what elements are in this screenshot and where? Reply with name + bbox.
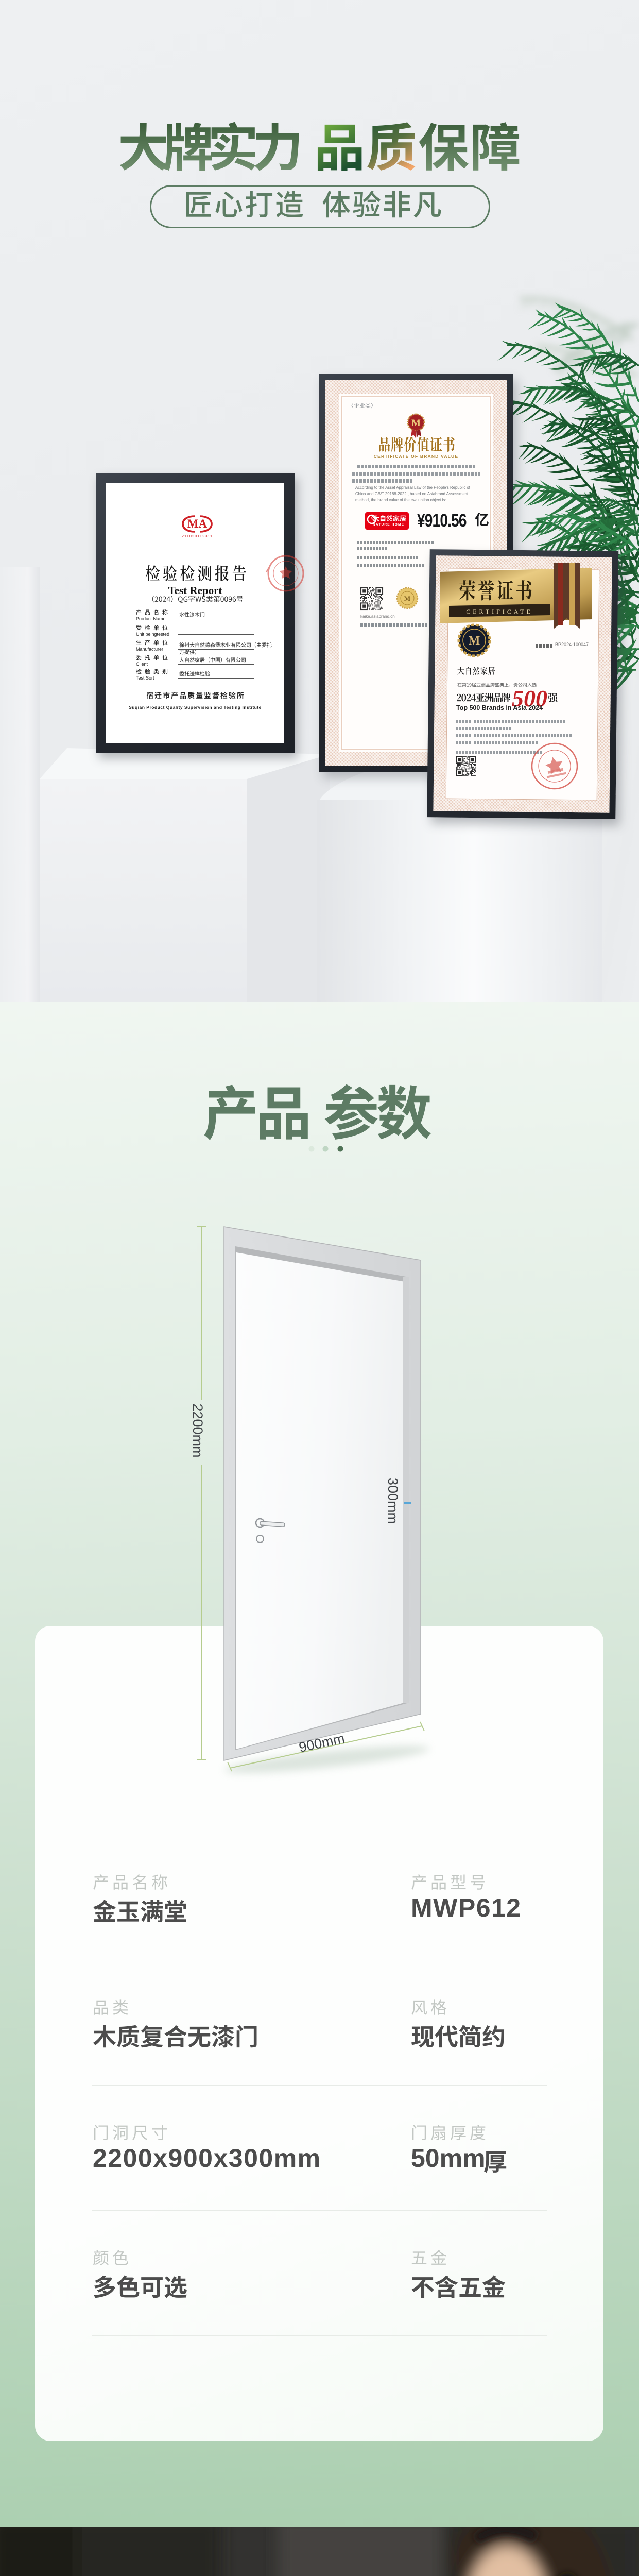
- svg-text:M: M: [411, 418, 421, 429]
- svg-text:M: M: [404, 595, 410, 602]
- svg-text:MA: MA: [187, 517, 208, 530]
- svg-text:211020112311: 211020112311: [182, 534, 213, 538]
- svg-text:CERTIFICATE: CERTIFICATE: [466, 608, 533, 615]
- svg-text:M: M: [469, 634, 480, 648]
